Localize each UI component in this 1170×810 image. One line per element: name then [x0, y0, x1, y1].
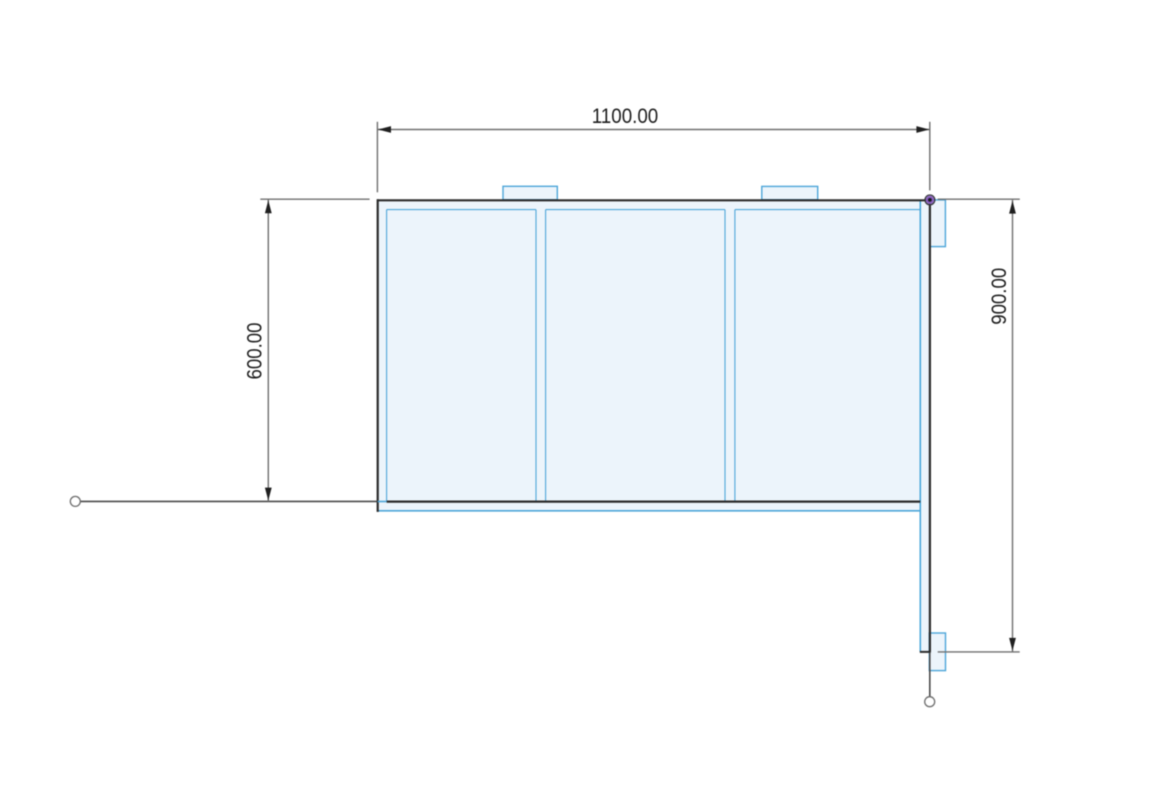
- svg-text:900.00: 900.00: [987, 268, 1011, 325]
- svg-text:1100.00: 1100.00: [592, 104, 659, 128]
- svg-text:600.00: 600.00: [242, 322, 266, 379]
